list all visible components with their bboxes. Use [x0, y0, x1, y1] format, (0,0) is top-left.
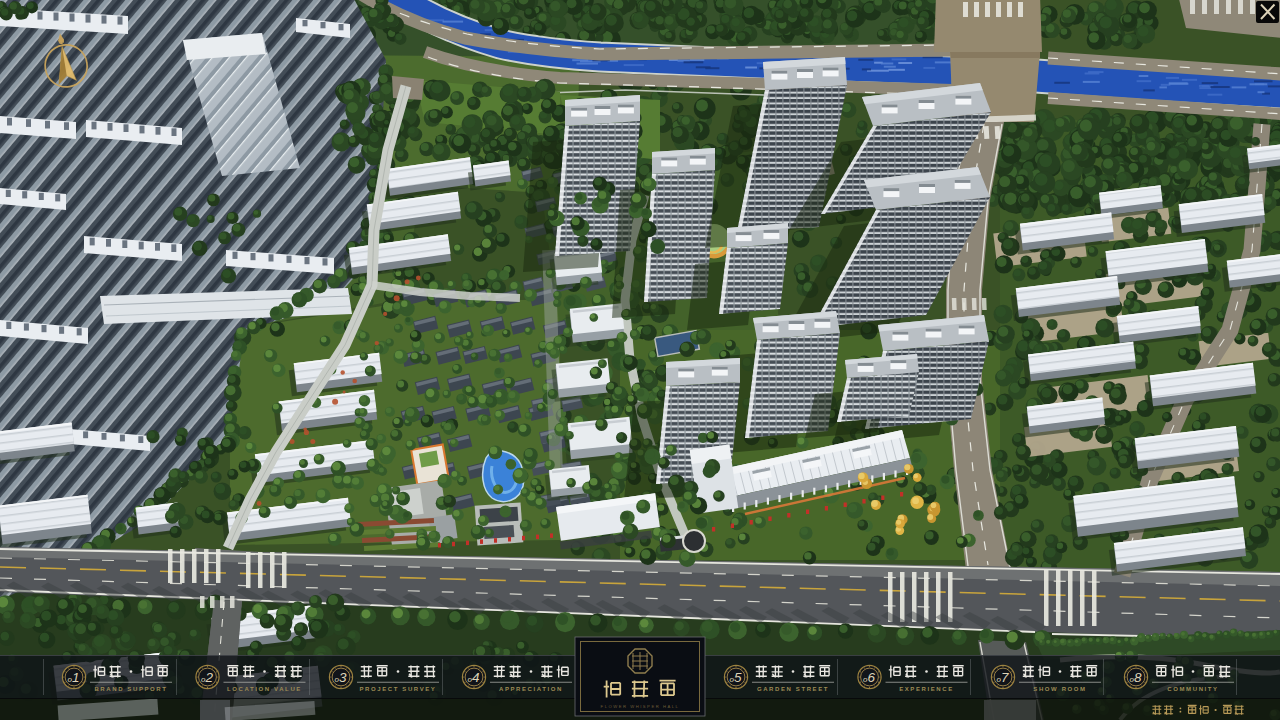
svg-text:SHOW ROOM: SHOW ROOM — [1033, 686, 1086, 692]
svg-text:BRAND SUPPORT: BRAND SUPPORT — [94, 686, 167, 692]
svg-text:LOCATION VALUE: LOCATION VALUE — [227, 686, 302, 692]
svg-text:GARDEN STREET: GARDEN STREET — [757, 686, 829, 692]
svg-text:EXPERIENCE: EXPERIENCE — [899, 686, 954, 692]
svg-text:PROJECT SURVEY: PROJECT SURVEY — [360, 686, 437, 692]
svg-text:FLOWER WHISPER HALL: FLOWER WHISPER HALL — [601, 704, 680, 709]
svg-text:APPRECIATION: APPRECIATION — [499, 686, 563, 692]
svg-text:COMMUNITY: COMMUNITY — [1167, 686, 1218, 692]
